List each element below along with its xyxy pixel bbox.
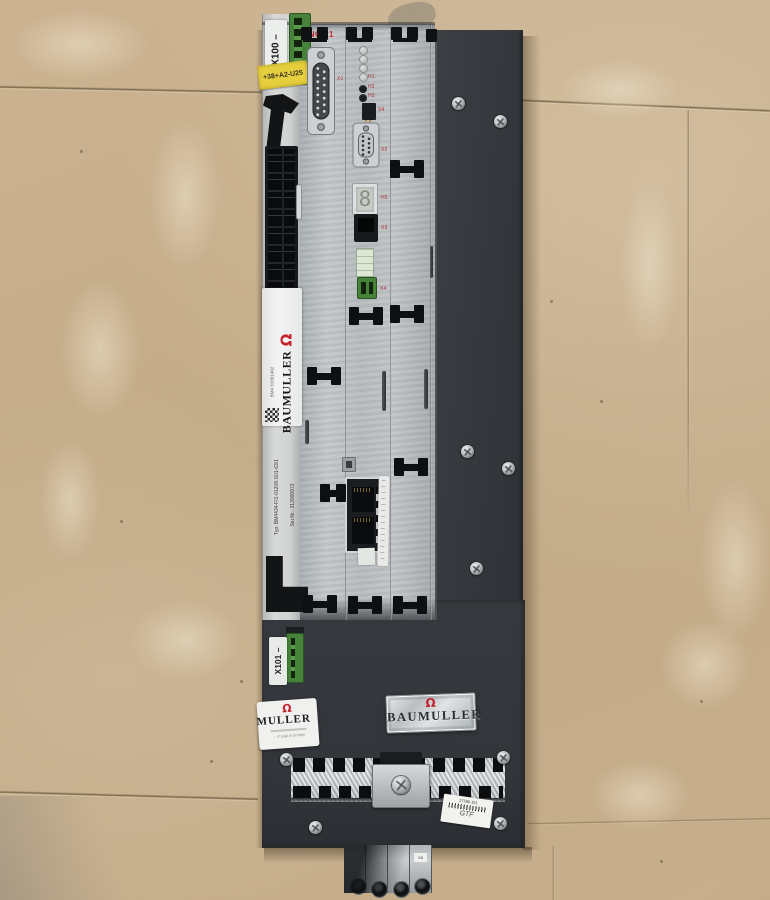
x100-label-text: X100 – (271, 34, 282, 66)
faceplate-seam (430, 24, 432, 620)
floor-blotch (130, 600, 240, 680)
card-latch-clip (393, 595, 427, 615)
clamp-screw (392, 776, 410, 794)
panel-screw (470, 562, 483, 575)
retainer-tab (426, 29, 437, 42)
brand-text: BAUMULLER (280, 351, 295, 434)
vent-slot (424, 369, 428, 409)
brand-text: BAUMULLER (387, 707, 475, 725)
panel-screw (452, 97, 465, 110)
floor-speck (600, 400, 603, 403)
retainer-bar (393, 38, 417, 42)
ref-h5: H5 (381, 195, 388, 201)
panel-screw (309, 821, 322, 834)
faceplate-top-edge (262, 22, 435, 25)
warranty-seal-label: Ω MULLER … if seal is broken (256, 698, 319, 750)
card-latch-clip (303, 594, 337, 614)
floor-blotch (40, 440, 100, 560)
port-ref-x1: X1 (337, 76, 344, 82)
floor-blotch (620, 180, 680, 350)
floor-shading (0, 796, 156, 900)
led-ref: H3 (368, 93, 375, 99)
floor-speck (700, 700, 703, 703)
panel-screw (497, 751, 510, 764)
panel-screw (502, 462, 515, 475)
floor-speck (80, 150, 83, 153)
status-led (360, 65, 367, 72)
retainer-bar (303, 38, 327, 42)
vent-slot (430, 246, 433, 278)
led-ref: H1 (368, 74, 375, 80)
card-latch-clip (320, 483, 346, 503)
card-latch-clip (349, 306, 383, 326)
floor-blotch (590, 760, 690, 830)
push-button (359, 85, 367, 93)
panel-screw (280, 753, 293, 766)
floor-blotch (60, 280, 140, 420)
floor-blotch (560, 60, 680, 120)
cast-shadow (523, 36, 541, 850)
status-led (360, 47, 367, 54)
dip-switch (362, 103, 376, 120)
service-jack (354, 214, 378, 242)
floor-seam (687, 110, 690, 525)
card-latch-clip (307, 366, 341, 386)
photo-stage: X100 – +38+A2-U25 Ω BAUMULLER BM4 310014… (0, 0, 770, 900)
floor-blotch (700, 480, 770, 640)
status-led (360, 74, 367, 81)
panel-screw (494, 817, 507, 830)
card-latch-clip (394, 457, 428, 477)
panel-screw (494, 115, 507, 128)
vent-slot (296, 184, 302, 220)
rj45-port (352, 487, 374, 512)
push-button (359, 94, 367, 102)
rj45-port (352, 517, 374, 544)
brand-plate: Ω BAUMULLER (385, 692, 476, 733)
floor-seam (0, 85, 262, 94)
vent-slot (305, 420, 309, 444)
seal-note: … if seal is broken (259, 731, 319, 740)
panel-screw (461, 445, 474, 458)
ref-s4: S4 (378, 107, 385, 113)
io-terminal-connector (357, 277, 377, 299)
floor-speck (210, 760, 213, 763)
display-digit: 8 (356, 187, 374, 212)
rail-clamp-tab (380, 752, 422, 764)
baumueller-logo-icon: Ω (280, 334, 295, 347)
status-led (360, 56, 367, 63)
dsub15-connector (306, 46, 336, 136)
panel-edge (435, 32, 437, 620)
floor-speck (240, 680, 243, 683)
floor-blotch (660, 620, 750, 710)
floor-speck (120, 520, 123, 523)
led-ref: H2 (368, 84, 375, 90)
pinout-label (356, 248, 374, 277)
card-latch-clip (348, 595, 382, 615)
cast-shadow (344, 845, 432, 893)
x101-terminal-connector (286, 633, 304, 683)
calibration-sticker (377, 476, 390, 566)
port-ref-x4: X4 (380, 286, 387, 292)
datamatrix-code (265, 408, 279, 422)
port-ref-x3: X3 (381, 225, 388, 231)
floor-blotch (10, 10, 150, 80)
dsub9-connector (352, 122, 380, 168)
floor-speck (660, 860, 663, 863)
backplane-connector (265, 146, 298, 290)
floor-blotch (150, 120, 220, 270)
type-designation: Typ: BM4434-FI1-01208-S01-63/1 (274, 459, 280, 535)
led-ref-labels: H1 H2 H3 (368, 74, 375, 99)
drive-chassis-side (435, 30, 523, 622)
floor-seam (552, 846, 555, 900)
card-latch-clip (390, 159, 424, 179)
small-label (358, 548, 376, 566)
seven-segment-display: 8 (352, 183, 378, 215)
vent-slot (382, 371, 386, 411)
small-jack (342, 457, 356, 472)
brand-small-text: BM4 31001402 (270, 367, 275, 398)
serial-number: Ser.Nr.: 313000972 (290, 483, 296, 526)
retainer-bar (348, 38, 372, 42)
x101-label-text: X101 – (273, 648, 283, 675)
port-ref-x2: X2 (381, 147, 388, 153)
card-latch-clip (390, 304, 424, 324)
floor-speck (550, 300, 553, 303)
